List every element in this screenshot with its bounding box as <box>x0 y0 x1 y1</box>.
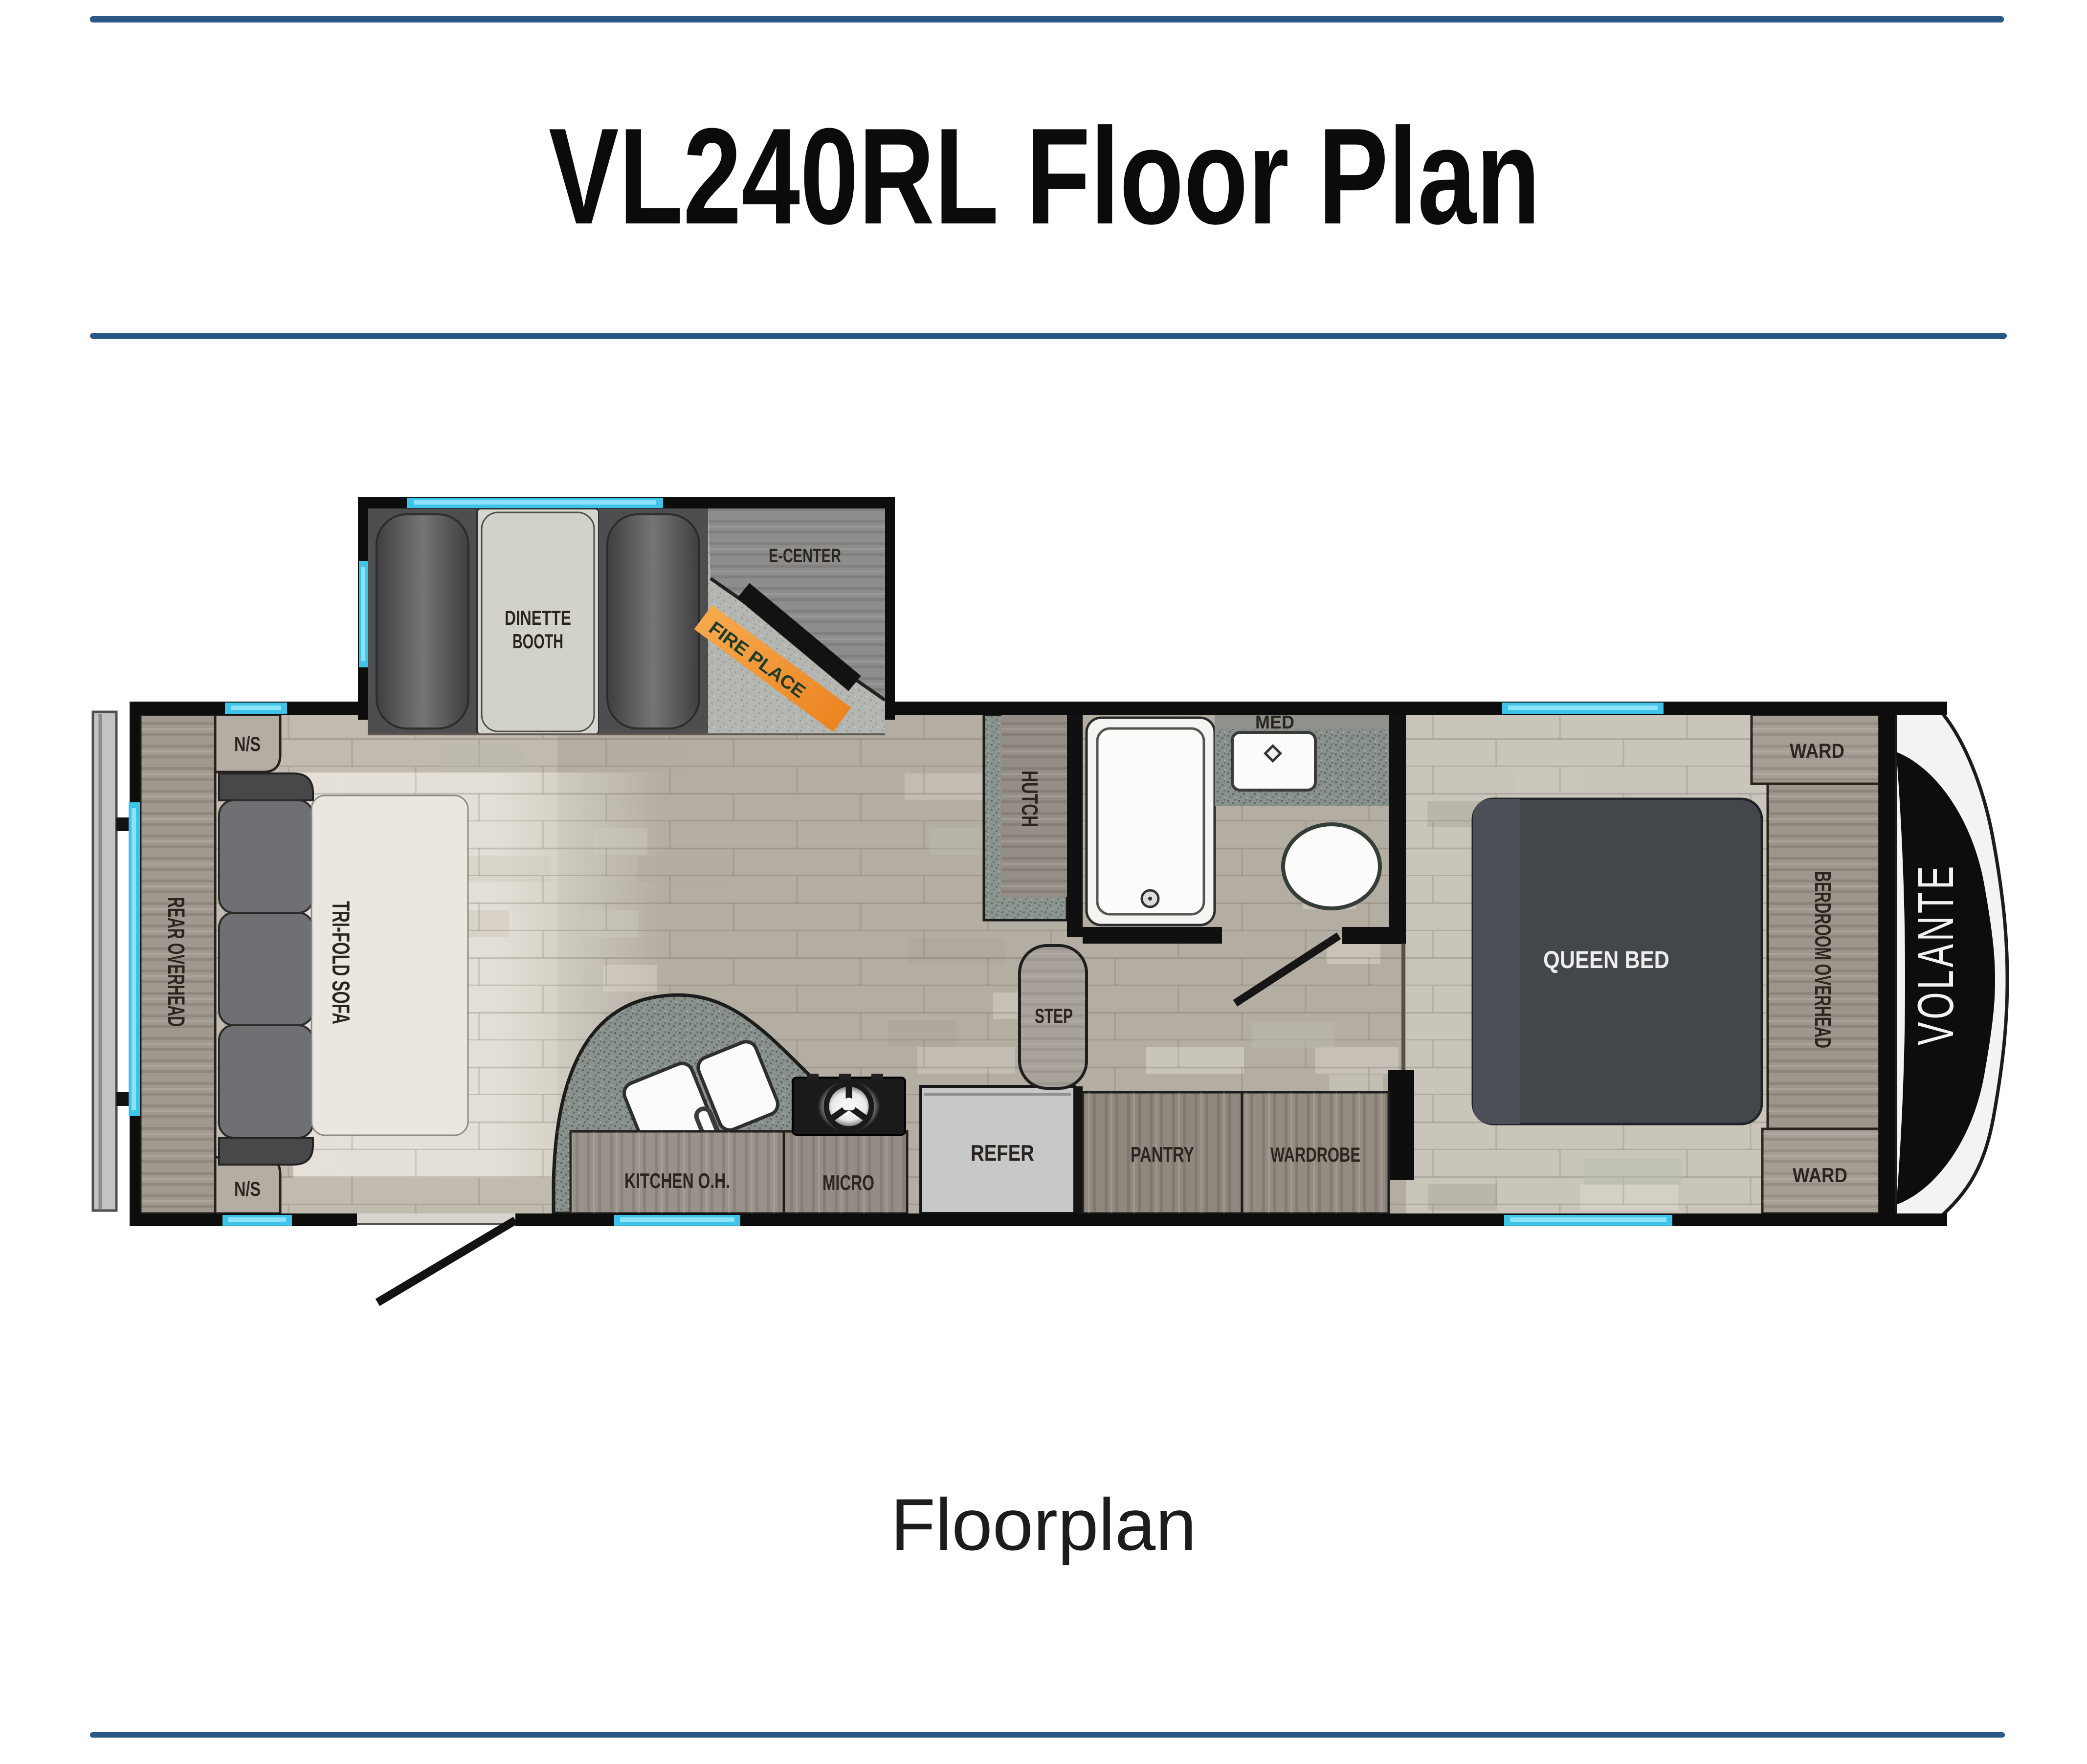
svg-text:WARD: WARD <box>1790 739 1844 762</box>
svg-text:Floorplan: Floorplan <box>890 1483 1196 1566</box>
svg-text:VOLANTE: VOLANTE <box>1908 863 1964 1045</box>
svg-text:N/S: N/S <box>234 732 261 755</box>
svg-text:BOOTH: BOOTH <box>512 630 563 653</box>
svg-text:WARD: WARD <box>1793 1164 1847 1187</box>
svg-text:E-CENTER: E-CENTER <box>769 545 841 567</box>
svg-text:KITCHEN O.H.: KITCHEN O.H. <box>624 1169 730 1193</box>
svg-text:REFER: REFER <box>971 1140 1034 1166</box>
svg-text:STEP: STEP <box>1035 1004 1073 1027</box>
svg-text:MICRO: MICRO <box>822 1171 874 1195</box>
svg-text:HUTCH: HUTCH <box>1017 771 1043 827</box>
svg-text:QUEEN BED: QUEEN BED <box>1543 946 1669 973</box>
svg-text:VL240RL Floor Plan: VL240RL Floor Plan <box>549 100 1540 253</box>
svg-text:DINETTE: DINETTE <box>505 606 571 629</box>
svg-text:TRI-FOLD SOFA: TRI-FOLD SOFA <box>327 901 355 1024</box>
svg-text:BERDROOM OVERHEAD: BERDROOM OVERHEAD <box>1810 871 1836 1048</box>
svg-text:N/S: N/S <box>234 1177 261 1200</box>
svg-text:MED: MED <box>1255 712 1294 733</box>
svg-text:REAR OVERHEAD: REAR OVERHEAD <box>163 897 189 1027</box>
svg-text:PANTRY: PANTRY <box>1131 1143 1194 1167</box>
svg-text:WARDROBE: WARDROBE <box>1270 1143 1360 1166</box>
